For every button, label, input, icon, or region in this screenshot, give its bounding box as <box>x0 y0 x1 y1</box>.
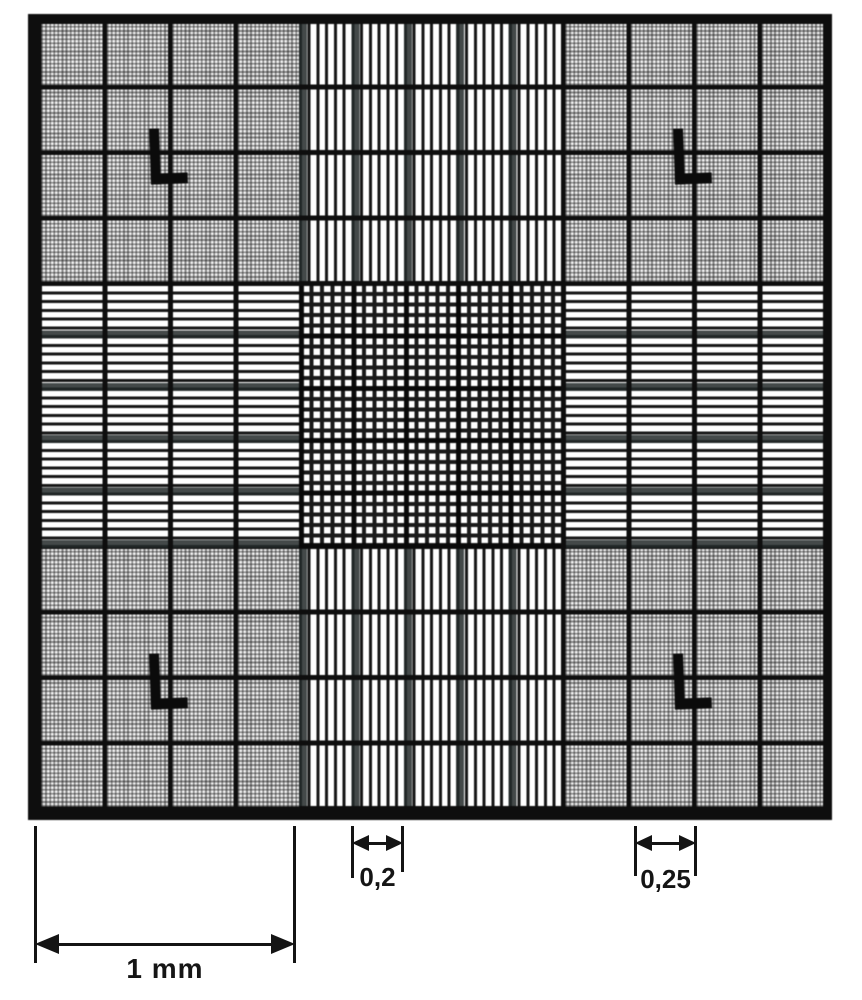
orientation-l-mark <box>149 127 188 184</box>
grid-block-center <box>299 286 561 549</box>
grid-block-top-right <box>561 23 823 286</box>
grid-block-top-center <box>299 23 561 286</box>
dimension-1mm: 1 mm <box>34 826 296 991</box>
dimension-0-2: 0,2 <box>351 826 404 898</box>
orientation-l-mark <box>673 127 712 184</box>
dimension-label-0-2: 0,2 <box>351 862 404 893</box>
dimension-arrow <box>35 934 295 954</box>
arrowhead-right-icon <box>679 835 696 851</box>
dimension-label-1mm: 1 mm <box>34 953 296 985</box>
arrowhead-right-icon <box>386 835 403 851</box>
hemocytometer-figure: 1 mm 0,2 0,25 <box>0 0 862 1000</box>
dimension-arrow <box>352 835 403 851</box>
dimension-arrow <box>635 835 696 851</box>
chamber-grid <box>28 14 832 820</box>
orientation-l-mark <box>673 653 712 710</box>
arrowhead-right-icon <box>271 934 295 954</box>
dimension-0-25: 0,25 <box>634 826 697 898</box>
grid-block-top-left <box>37 23 299 286</box>
orientation-l-mark <box>149 653 188 710</box>
grid-block-middle-right <box>561 286 823 549</box>
grid-block-bottom-right <box>561 548 823 811</box>
grid-block-bottom-center <box>299 548 561 811</box>
arrow-shaft <box>41 943 289 947</box>
grid-block-middle-left <box>37 286 299 549</box>
dimension-label-0-25: 0,25 <box>634 864 697 895</box>
grid-block-bottom-left <box>37 548 299 811</box>
